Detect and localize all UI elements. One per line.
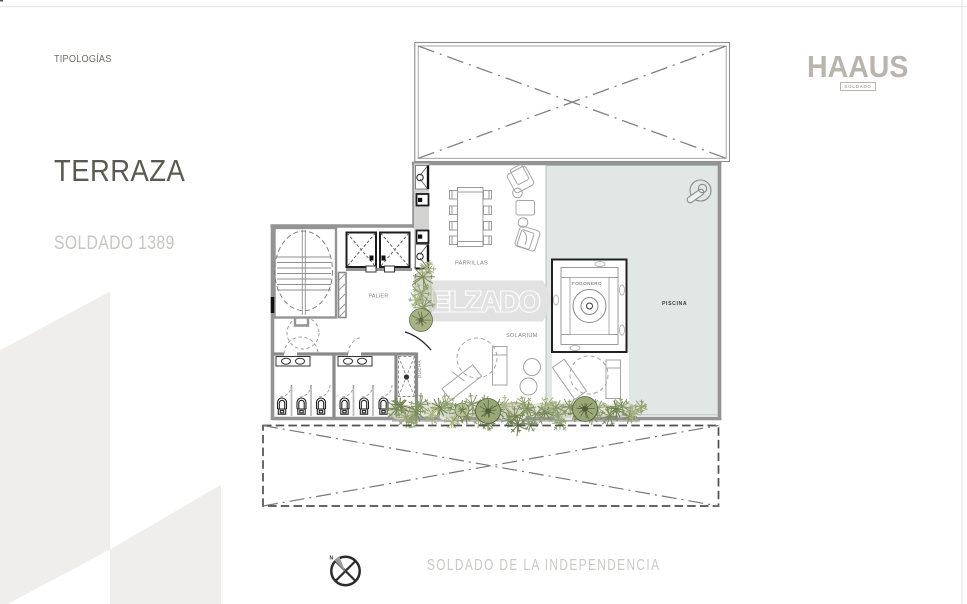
svg-text:N: N xyxy=(330,556,334,562)
svg-text:DUCHA: DUCHA xyxy=(417,360,422,378)
svg-text:PARRILLAS: PARRILLAS xyxy=(455,261,488,267)
svg-text:FOGONERO: FOGONERO xyxy=(572,281,602,286)
svg-text:PISCINA: PISCINA xyxy=(662,301,687,307)
svg-text:ELZADO: ELZADO xyxy=(431,287,539,319)
svg-text:SOLARIUM: SOLARIUM xyxy=(506,333,538,339)
svg-text:PALIER: PALIER xyxy=(369,294,389,300)
